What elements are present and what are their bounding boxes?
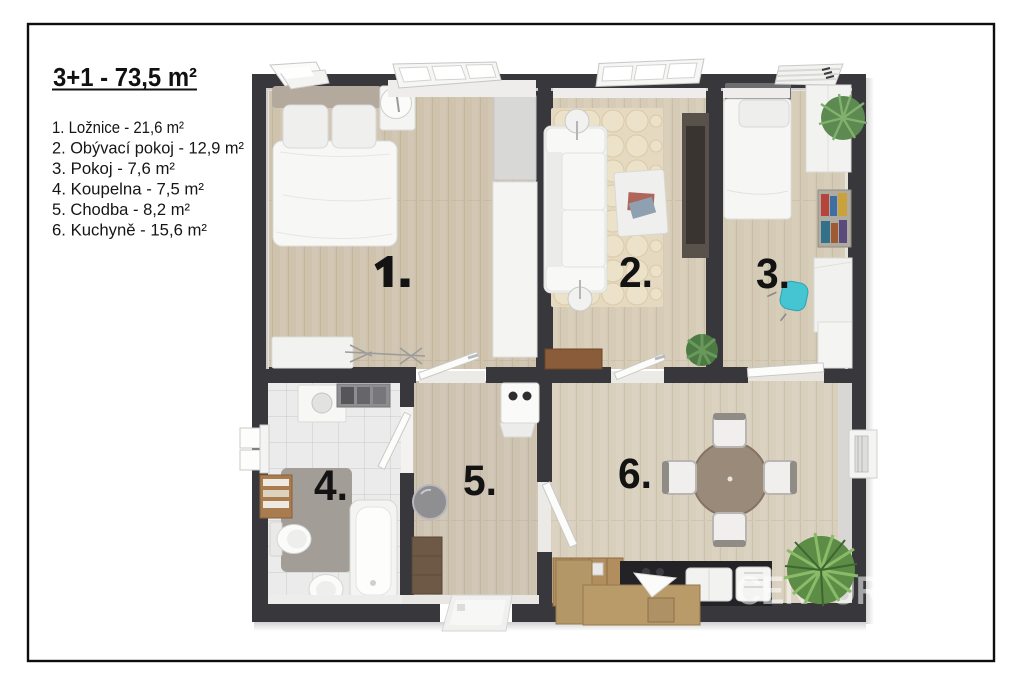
svg-text:1. Ložnice - 21,6 m²: 1. Ložnice - 21,6 m² (52, 118, 184, 137)
svg-text:5. Chodba - 8,2 m²: 5. Chodba - 8,2 m² (52, 200, 190, 219)
svg-text:5.: 5. (463, 457, 497, 505)
svg-text:3+1 - 73,5 m²: 3+1 - 73,5 m² (53, 64, 197, 92)
svg-text:6.: 6. (618, 450, 652, 498)
svg-text:3.: 3. (756, 250, 790, 298)
svg-text:4. Koupelna - 7,5 m²: 4. Koupelna - 7,5 m² (52, 180, 204, 199)
svg-text:4.: 4. (314, 462, 348, 510)
svg-text:6. Kuchyně - 15,6 m²: 6. Kuchyně - 15,6 m² (52, 221, 207, 240)
svg-text:2. Obývací pokoj - 12,9 m²: 2. Obývací pokoj - 12,9 m² (52, 139, 244, 158)
svg-text:2.: 2. (619, 249, 653, 297)
svg-text:3. Pokoj - 7,6 m²: 3. Pokoj - 7,6 m² (52, 159, 175, 178)
